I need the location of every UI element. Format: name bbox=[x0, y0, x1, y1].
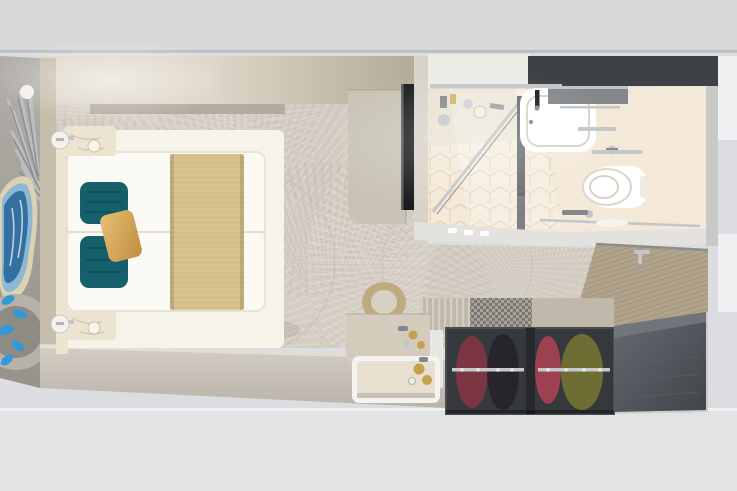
background-bottom-band bbox=[0, 408, 737, 491]
wardrobe-top-slats bbox=[423, 298, 473, 332]
floor-fixture bbox=[562, 210, 588, 215]
nightstand-dish bbox=[88, 140, 100, 152]
lamp-slot bbox=[56, 322, 64, 325]
doorframe-wall bbox=[706, 86, 718, 246]
right-wall-block-top bbox=[718, 56, 737, 140]
light-glow bbox=[0, 38, 230, 122]
stool-top bbox=[371, 290, 397, 314]
garment-olive bbox=[561, 334, 603, 410]
serving-tray bbox=[352, 356, 440, 403]
minibar-cabinet bbox=[614, 312, 706, 412]
nightstand-dish bbox=[88, 322, 100, 334]
shower-drain bbox=[596, 219, 628, 227]
right-wall-block-bottom bbox=[718, 234, 737, 312]
toilet-tank-edge bbox=[640, 176, 648, 198]
garment-dark bbox=[487, 334, 519, 410]
bathroom-light-glow bbox=[310, 70, 630, 210]
wardrobe-interior bbox=[446, 328, 614, 414]
luggage-bench bbox=[470, 298, 532, 332]
wardrobe-base-shadow bbox=[446, 410, 614, 414]
cabin-floorplan bbox=[0, 0, 737, 491]
bed-runner bbox=[170, 154, 244, 310]
garment-maroon bbox=[456, 336, 488, 408]
lamp-slot bbox=[56, 138, 64, 141]
floorplan-render bbox=[0, 0, 737, 491]
tray-inner-shadow bbox=[357, 393, 435, 398]
bed bbox=[51, 126, 300, 354]
wardrobe-divider bbox=[526, 328, 535, 414]
